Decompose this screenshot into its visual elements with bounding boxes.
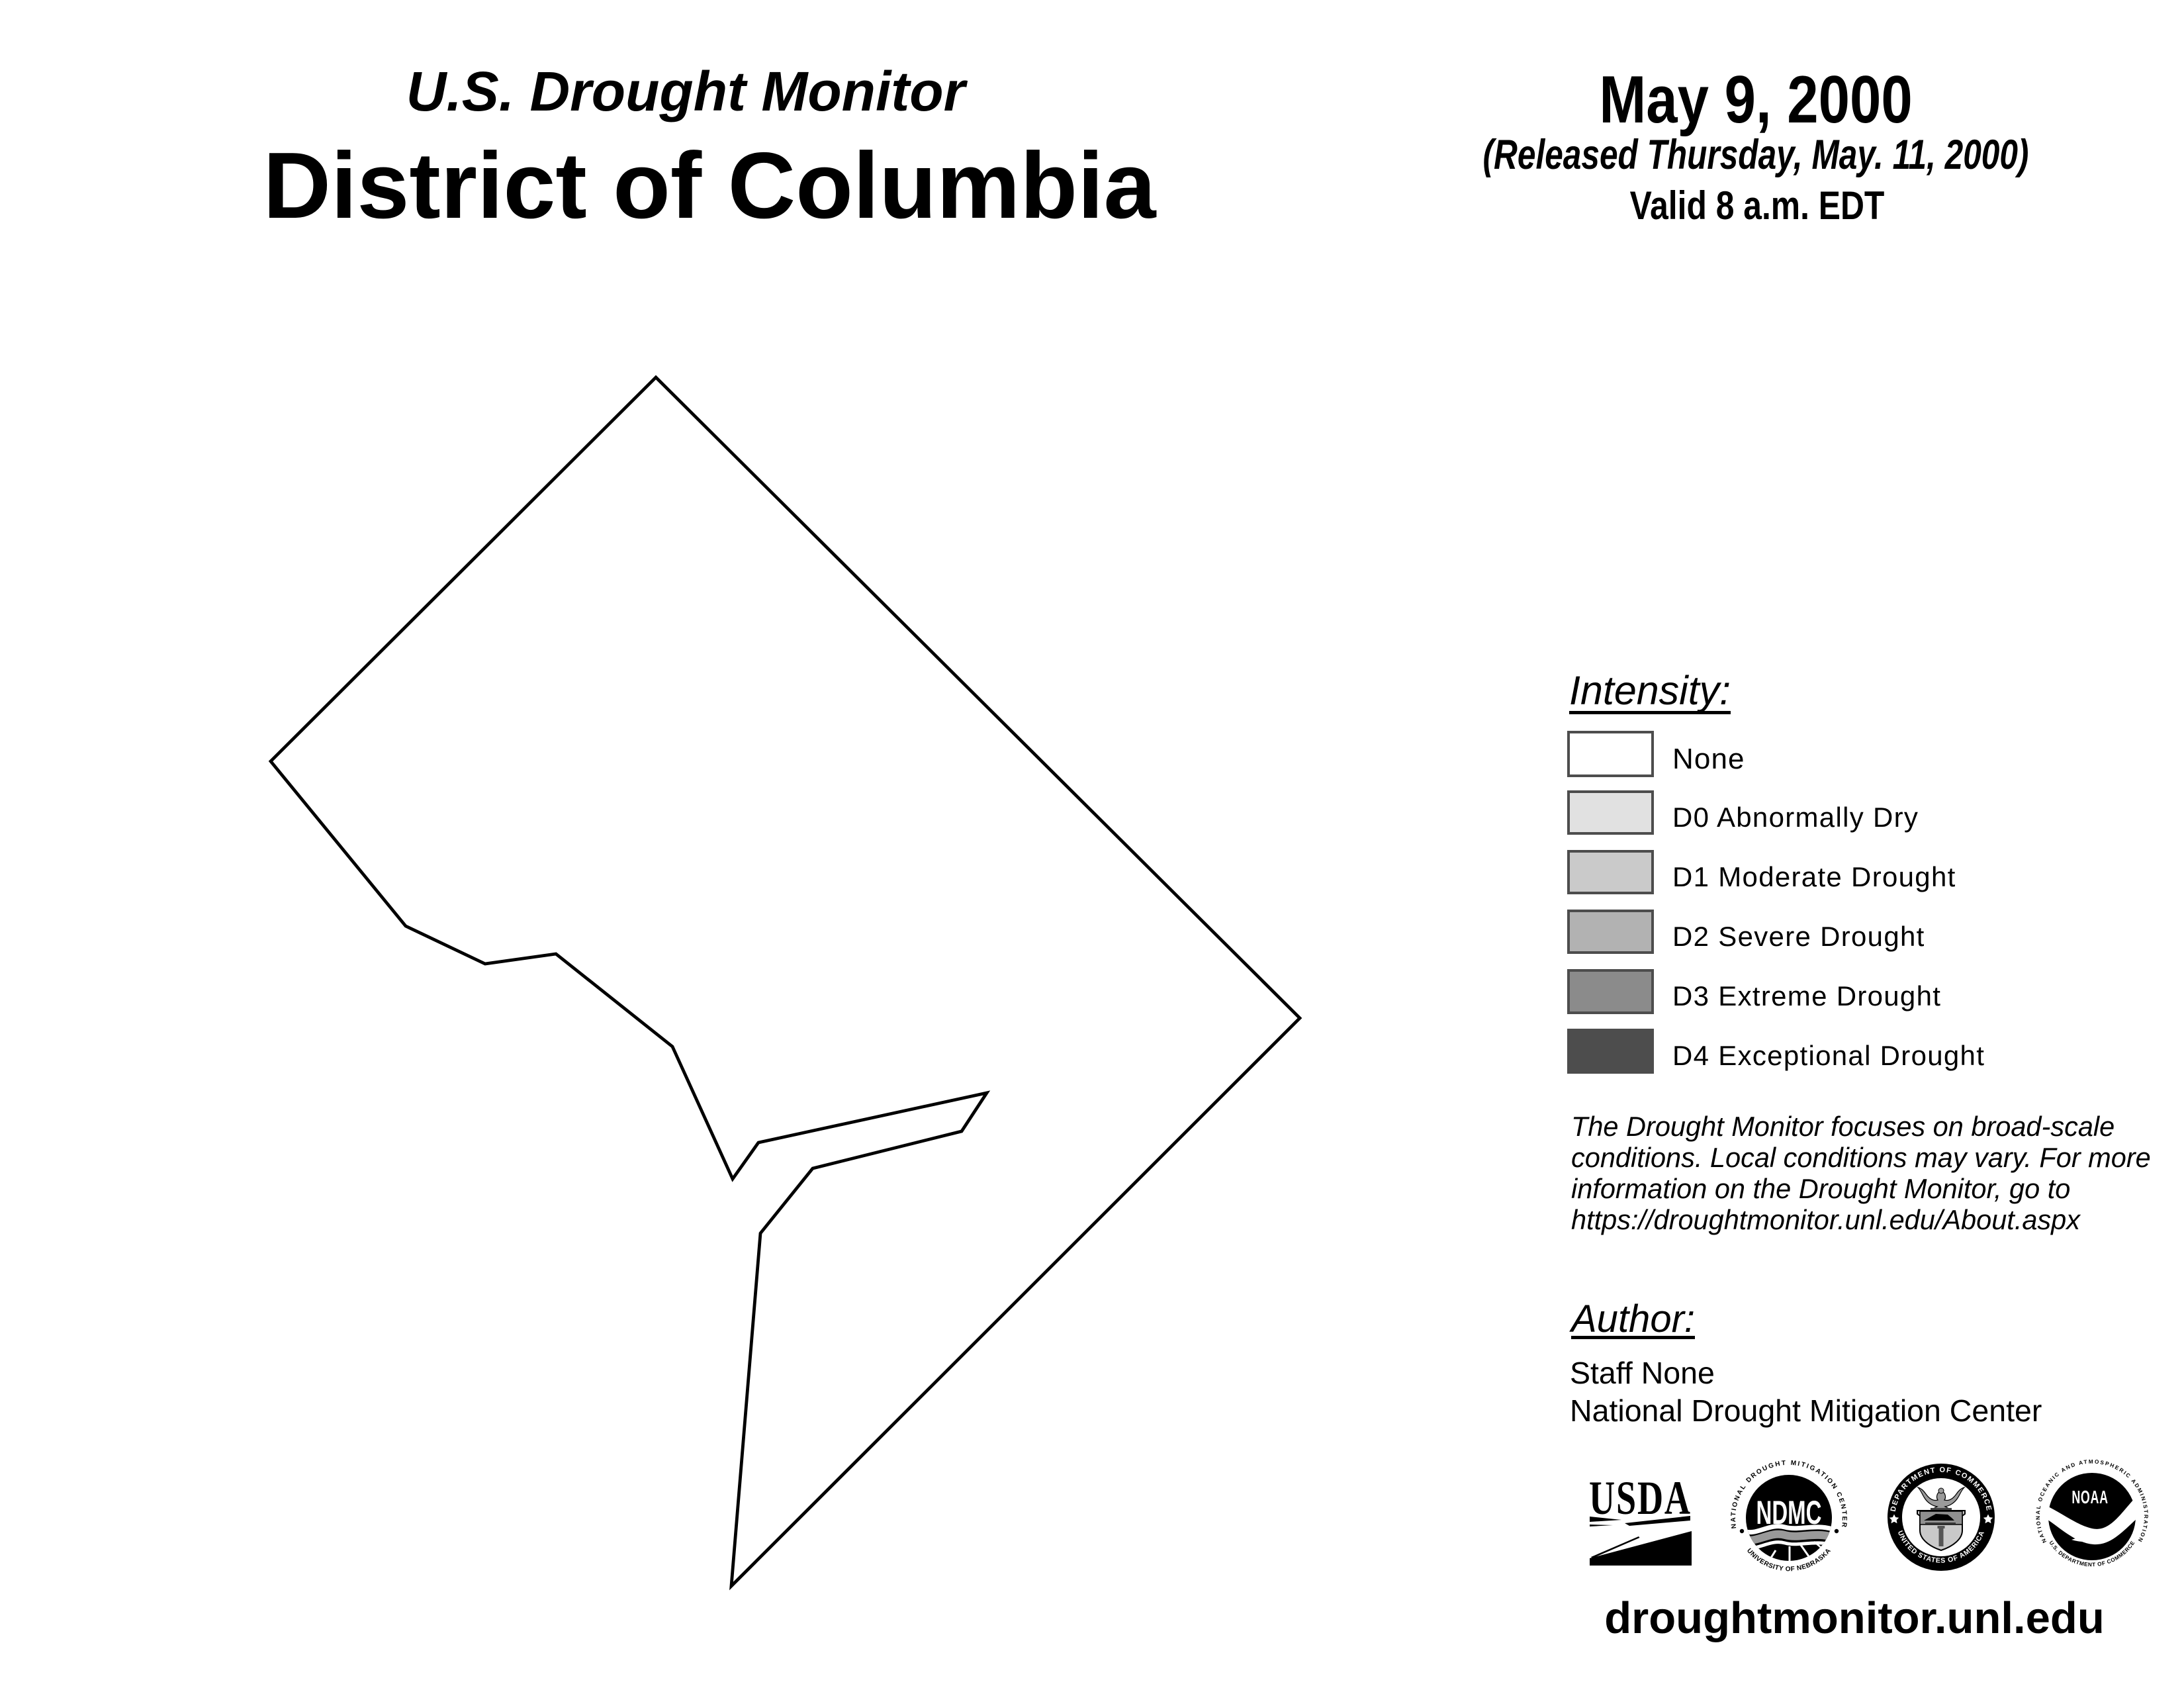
svg-text:NOAA: NOAA (2071, 1487, 2108, 1507)
svg-text:NDMC: NDMC (1756, 1494, 1822, 1530)
svg-text:USDA: USDA (1589, 1473, 1692, 1524)
